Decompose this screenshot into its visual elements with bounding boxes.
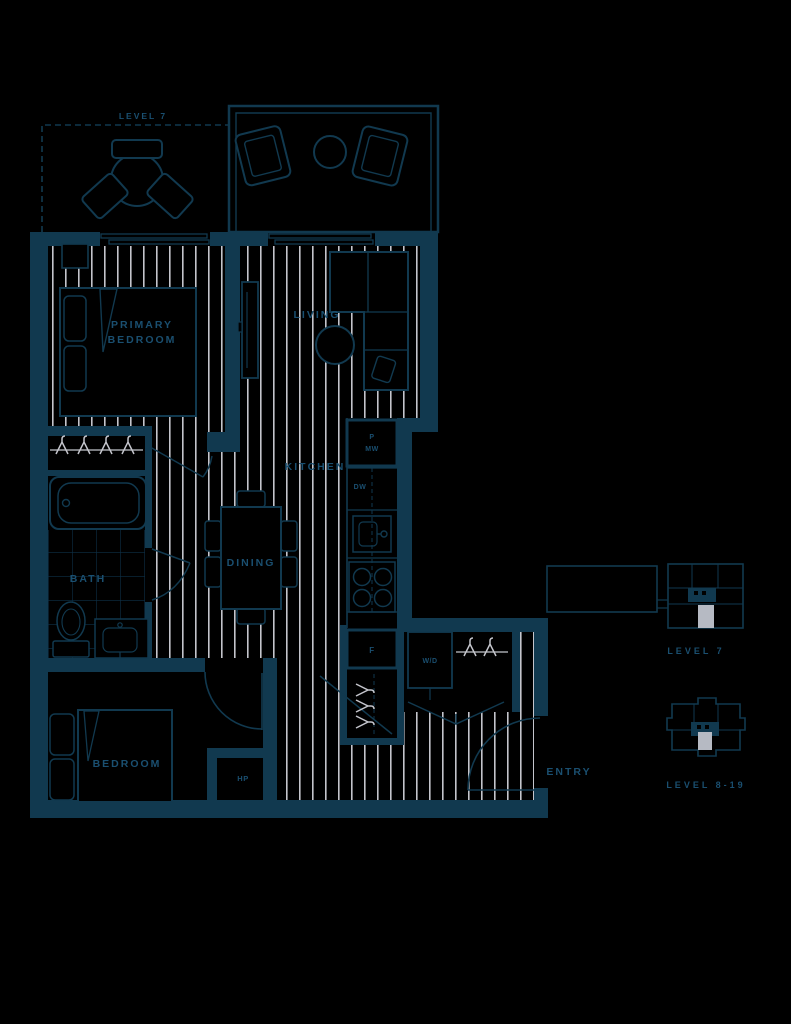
- microwave-label: MW: [365, 446, 378, 453]
- keyplan-unit-highlight: [698, 605, 714, 628]
- pillow-icon: [50, 714, 74, 755]
- dining-chair-icon: [237, 608, 265, 624]
- keyplan-level-8-19: LEVEL 8-19: [666, 698, 745, 790]
- pillow-icon: [50, 759, 74, 800]
- hanger-icon: [56, 436, 68, 454]
- laundry-closet: W/D: [408, 632, 508, 700]
- dining-chair-icon: [281, 557, 297, 587]
- coffee-table-icon: [316, 326, 354, 364]
- hanger-icon: [464, 638, 476, 656]
- hanger-icon: [78, 436, 90, 454]
- pantry-label: P: [369, 434, 374, 441]
- heat-pump-label: HP: [237, 774, 248, 783]
- hanger-icon: [122, 436, 134, 454]
- balcony-armchair-icon: [351, 125, 408, 187]
- keyplan-podium-outline: [547, 566, 657, 612]
- hanger-icon: [484, 638, 496, 656]
- floorplan-canvas: LEVEL 7: [0, 0, 791, 1024]
- bathroom-sink-icon: [95, 619, 148, 658]
- dining-chair-icon: [281, 521, 297, 551]
- pantry-microwave-cabinet: [347, 420, 397, 466]
- bath-label: BATH: [70, 573, 106, 585]
- entry-label: ENTRY: [546, 766, 591, 778]
- fridge-label: F: [369, 646, 374, 655]
- primary-bedroom-label-1: PRIMARY: [111, 319, 173, 331]
- bedroom-door-arc: [205, 672, 262, 730]
- pillow-icon: [64, 296, 86, 341]
- keyplan-level8-19-label: LEVEL 8-19: [666, 780, 745, 790]
- tv-icon: [242, 282, 258, 378]
- dining-chair-icon: [205, 557, 221, 587]
- coat-closet: [356, 674, 374, 736]
- living-label: LIVING: [293, 309, 340, 321]
- pillow-icon: [64, 346, 86, 391]
- bedroom-label: BEDROOM: [93, 758, 162, 770]
- primary-bedroom-label-2: BEDROOM: [108, 334, 177, 346]
- balcony: [229, 106, 438, 232]
- floorplan-page: LEVEL 7: [0, 0, 791, 1024]
- hanger-icon: [356, 700, 374, 712]
- keyplan-level-7: LEVEL 7: [547, 564, 743, 656]
- hanger-icon: [100, 436, 112, 454]
- keyplan-unit-highlight: [698, 732, 712, 750]
- kitchen-label: KITCHEN: [285, 461, 346, 473]
- keyplan-level7-label: LEVEL 7: [667, 646, 724, 656]
- balcony-table-icon: [314, 136, 346, 168]
- nightstand-icon: [62, 244, 88, 268]
- terrace: LEVEL 7: [42, 111, 228, 232]
- hanger-icon: [356, 684, 374, 696]
- dining-chair-icon: [237, 491, 265, 507]
- dining-label: DINING: [227, 557, 276, 569]
- washer-dryer-label: W/D: [422, 658, 437, 665]
- patio-chair-icon: [112, 140, 162, 158]
- dining-chair-icon: [205, 521, 221, 551]
- balcony-armchair-icon: [234, 125, 291, 187]
- bathtub-icon: [50, 477, 146, 529]
- dishwasher-label: DW: [354, 484, 367, 491]
- terrace-level-label: LEVEL 7: [119, 111, 167, 121]
